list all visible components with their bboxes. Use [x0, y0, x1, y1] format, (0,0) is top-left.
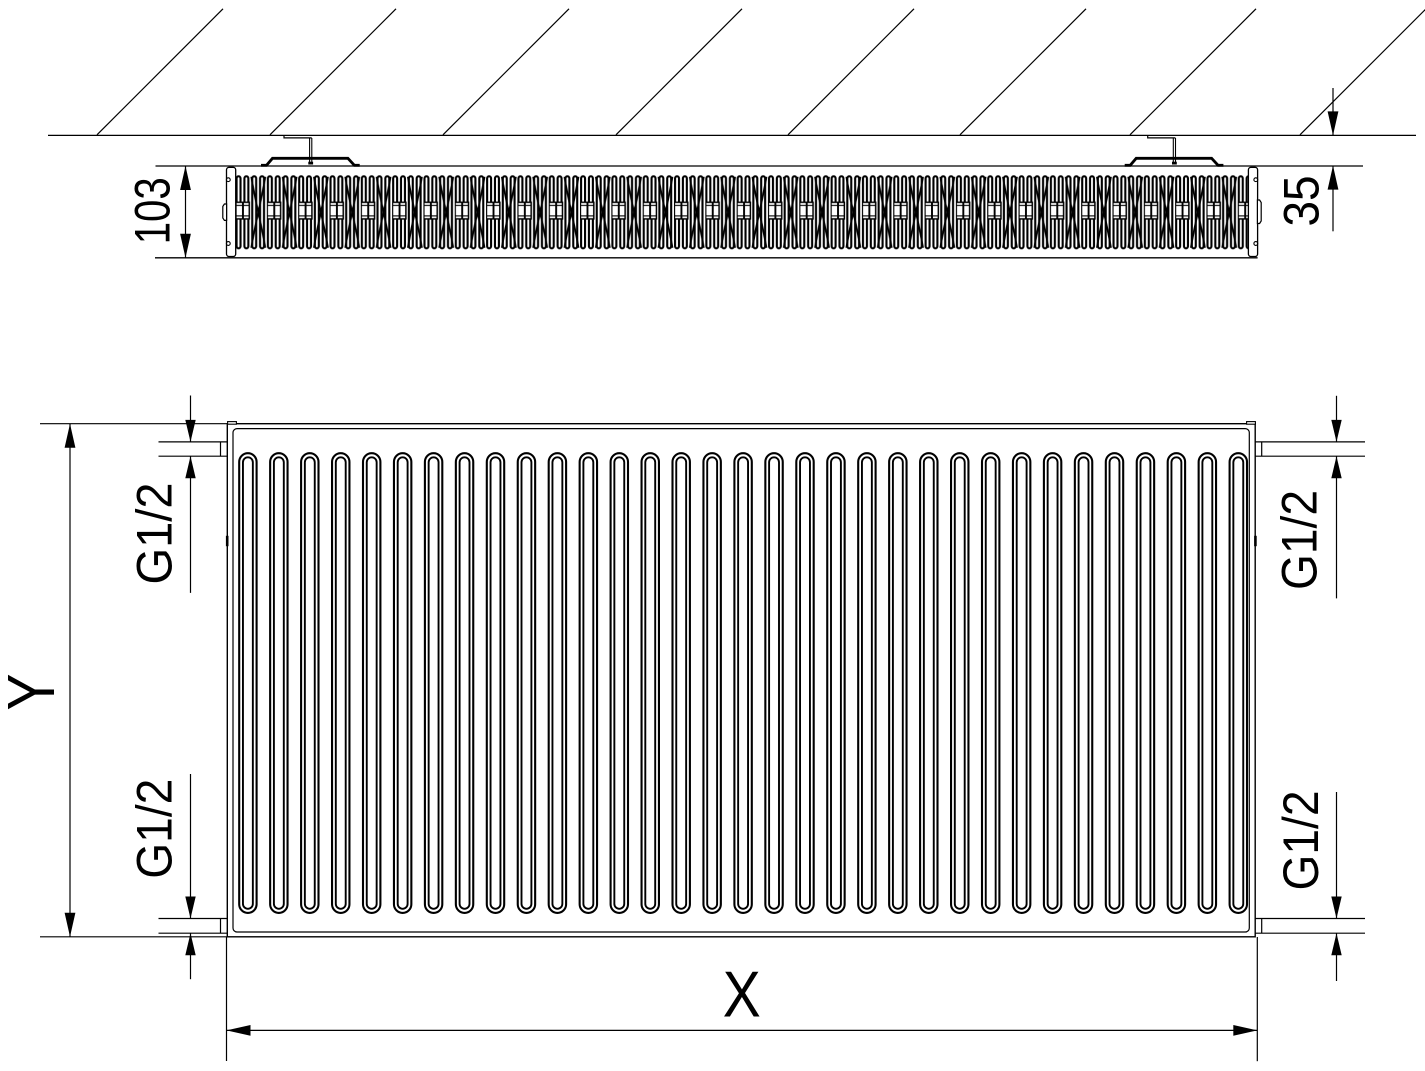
svg-text:G1/2: G1/2: [127, 779, 183, 879]
svg-text:35: 35: [1274, 176, 1330, 227]
svg-text:Y: Y: [0, 674, 69, 711]
svg-text:G1/2: G1/2: [1272, 490, 1328, 590]
svg-text:103: 103: [125, 177, 181, 244]
svg-text:G1/2: G1/2: [1273, 791, 1329, 891]
svg-text:G1/2: G1/2: [127, 483, 183, 585]
svg-text:X: X: [723, 958, 761, 1031]
